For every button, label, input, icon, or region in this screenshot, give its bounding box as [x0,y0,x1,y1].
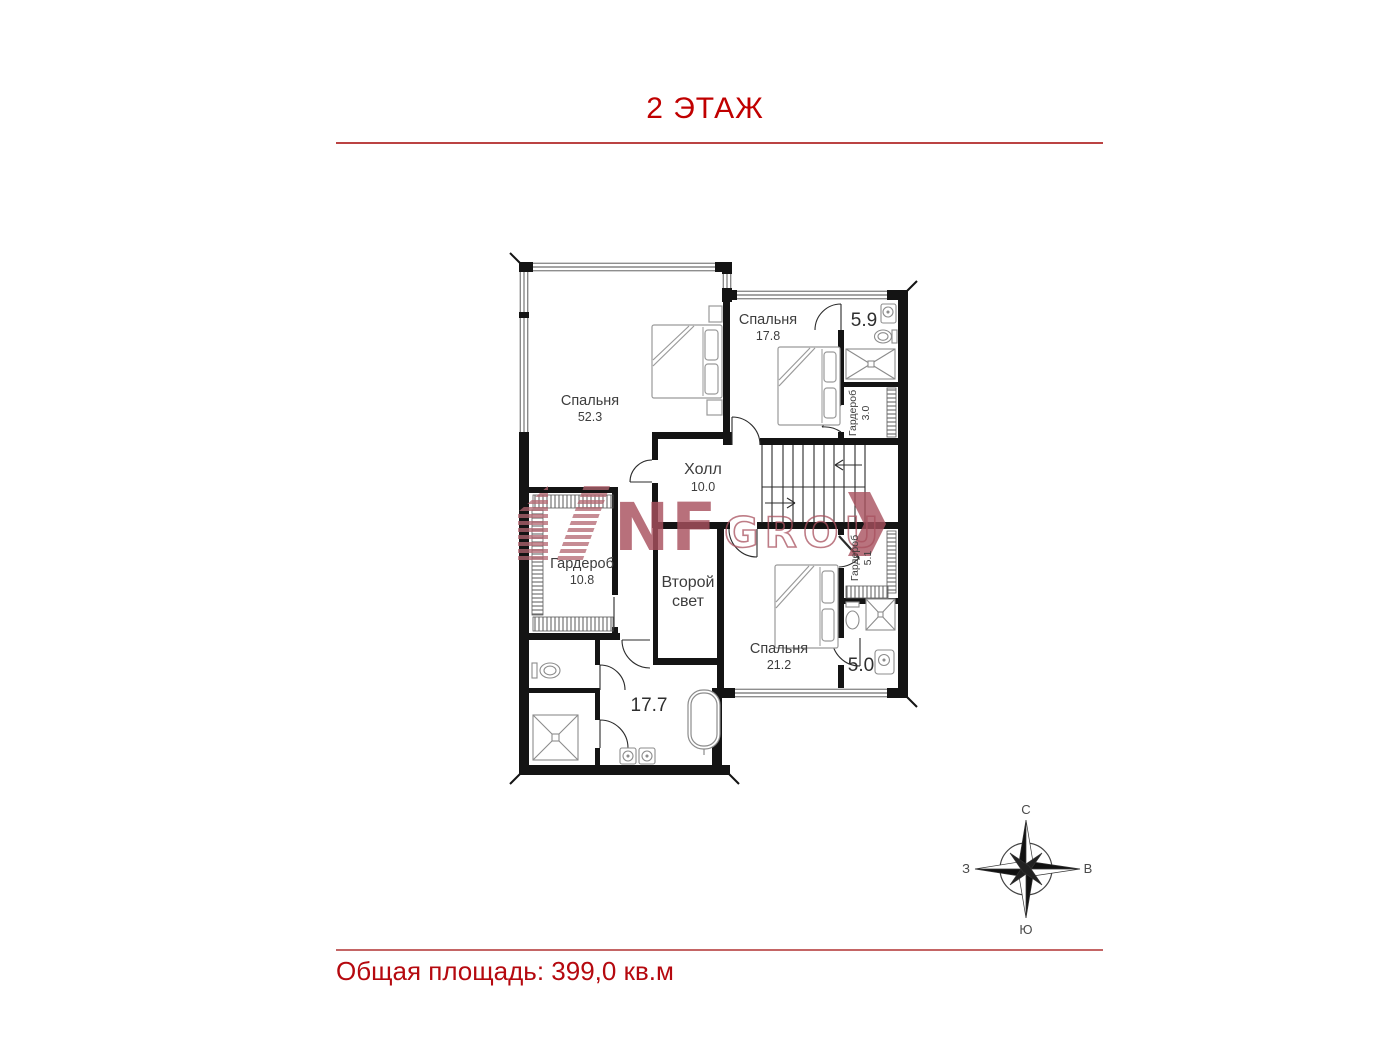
window [737,290,887,300]
room-label-bath-177: 17.7 [624,695,674,717]
window [533,262,715,272]
bed-icon [778,347,840,425]
bed-icon [775,565,838,648]
compass-south-label: Ю [1019,922,1032,937]
nf-group-watermark: NF GROUP [518,486,886,562]
compass-east-label: В [1084,861,1093,876]
shower-icon [846,349,895,379]
room-label-second-light: Второй свет [648,574,728,611]
floor-title: 2 ЭТАЖ [340,92,1070,126]
watermark-brand-text: NF [614,489,718,562]
room-label-hall: Холл 10.0 [653,461,753,494]
window [519,272,529,312]
toilet-icon [846,602,859,629]
room-label-bath-59: 5.9 [839,310,889,332]
bathtub-icon [688,690,720,755]
window [722,274,732,288]
compass-north-label: С [1021,802,1030,817]
page: 2 ЭТАЖ [0,0,1400,1050]
shower-icon [533,715,578,760]
room-label-wardrobe-51: Гардероб 5.1 [849,523,889,593]
room-label-bedroom-52: Спальня 52.3 [540,393,640,424]
nf-logo-mark [518,486,610,562]
window [735,688,887,698]
total-area-text: Общая площадь: 399,0 кв.м [336,956,674,987]
footer-divider [336,949,1103,951]
room-label-wardrobe-30: Гардероб 3.0 [847,378,887,448]
sink-icon [620,748,655,764]
bed-icon [652,306,722,415]
shower-icon [866,599,895,630]
title-divider [336,142,1103,144]
room-label-bath-50: 5.0 [836,655,886,677]
room-label-bedroom-17: Спальня 17.8 [718,312,818,343]
room-label-wardrobe-108: Гардероб 10.8 [532,556,632,587]
window [519,318,529,432]
compass-rose-icon: С Ю З В [958,802,1098,942]
room-label-bedroom-21: Спальня 21.2 [729,641,829,672]
toilet-icon [532,663,560,678]
compass-west-label: З [962,861,970,876]
